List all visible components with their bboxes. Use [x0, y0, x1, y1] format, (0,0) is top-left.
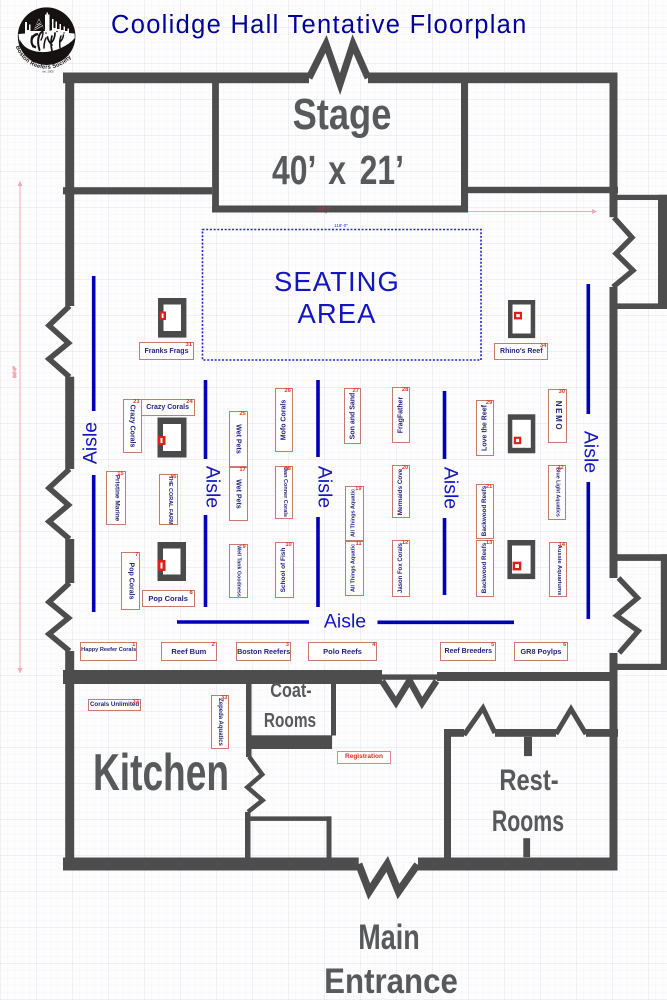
svg-text:est. 2005: est. 2005 — [42, 70, 54, 74]
svg-text:84'-0": 84'-0" — [12, 366, 17, 378]
svg-text:110'-0": 110'-0" — [317, 206, 331, 211]
svg-text:118'-0": 118'-0" — [334, 223, 348, 228]
